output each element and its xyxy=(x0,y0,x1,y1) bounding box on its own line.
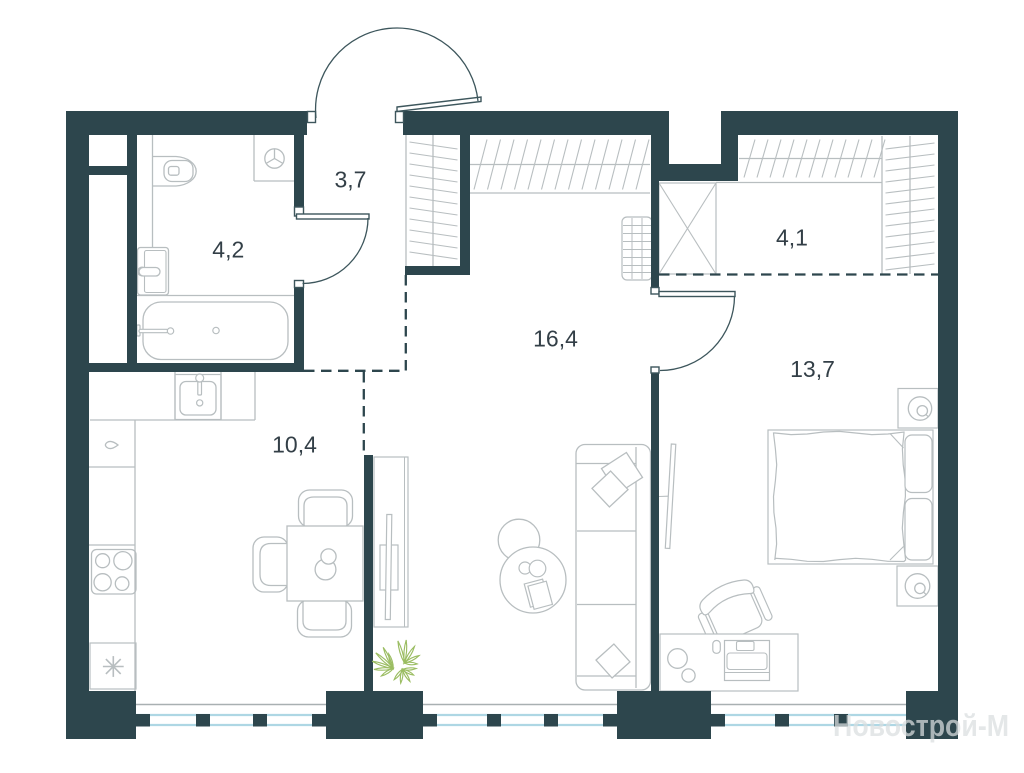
svg-text:Новострой-М: Новострой-М xyxy=(833,708,1009,743)
svg-text:10,4: 10,4 xyxy=(272,432,317,458)
svg-text:4,2: 4,2 xyxy=(212,236,244,262)
svg-text:4,1: 4,1 xyxy=(776,224,808,250)
svg-text:13,7: 13,7 xyxy=(790,356,835,382)
svg-text:3,7: 3,7 xyxy=(335,166,367,192)
svg-text:16,4: 16,4 xyxy=(533,325,578,351)
